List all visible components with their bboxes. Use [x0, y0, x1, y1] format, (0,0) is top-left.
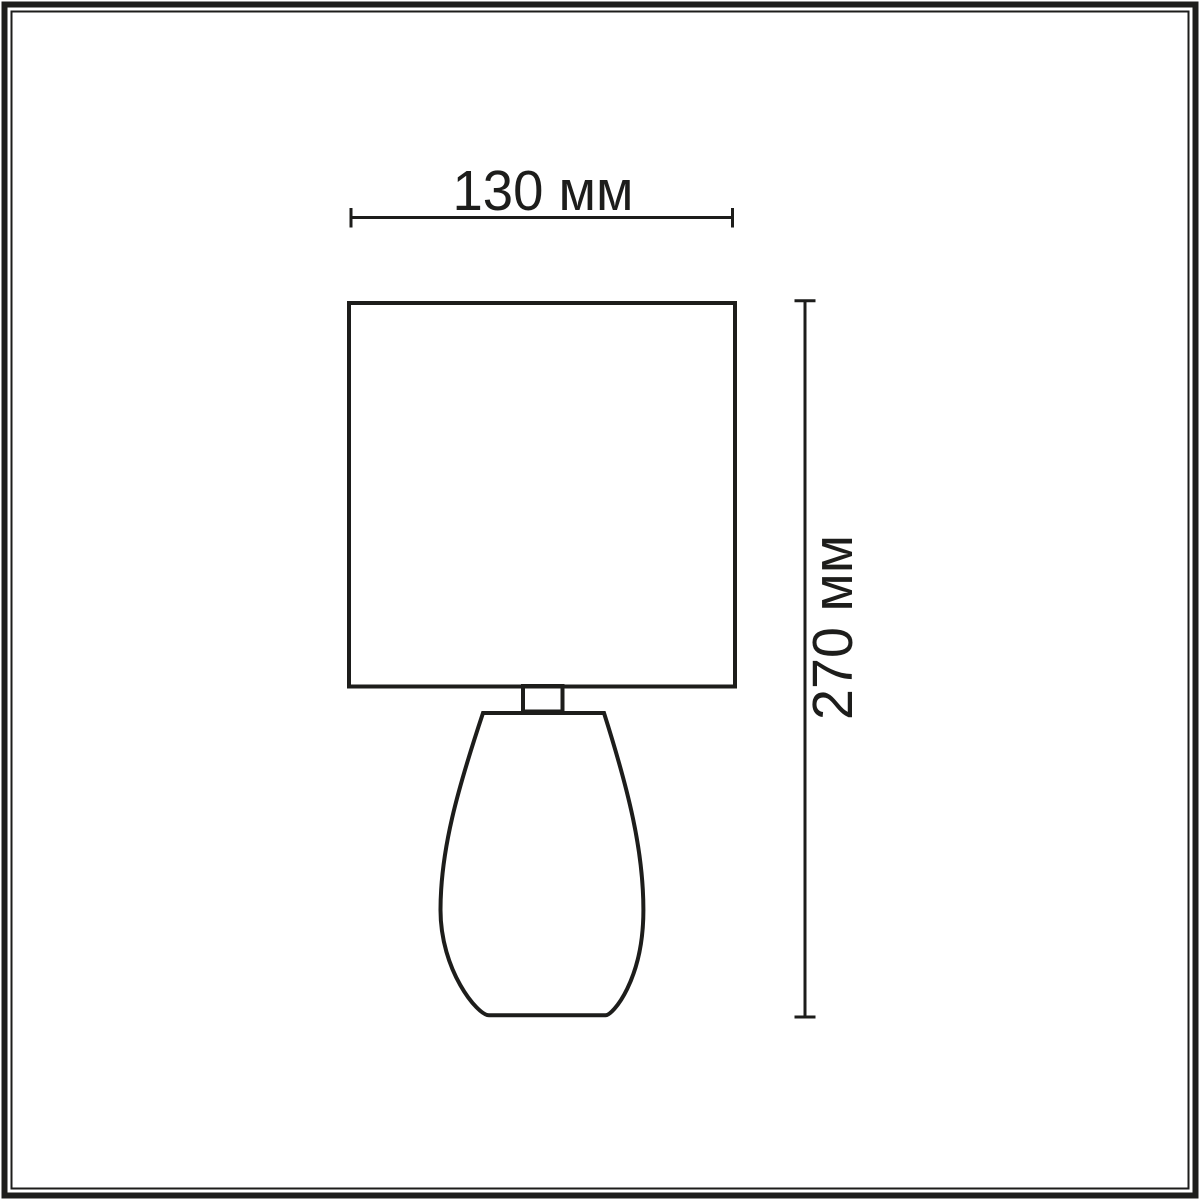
svg-text:130 мм: 130 мм	[453, 159, 634, 223]
svg-text:270 мм: 270 мм	[801, 535, 865, 720]
